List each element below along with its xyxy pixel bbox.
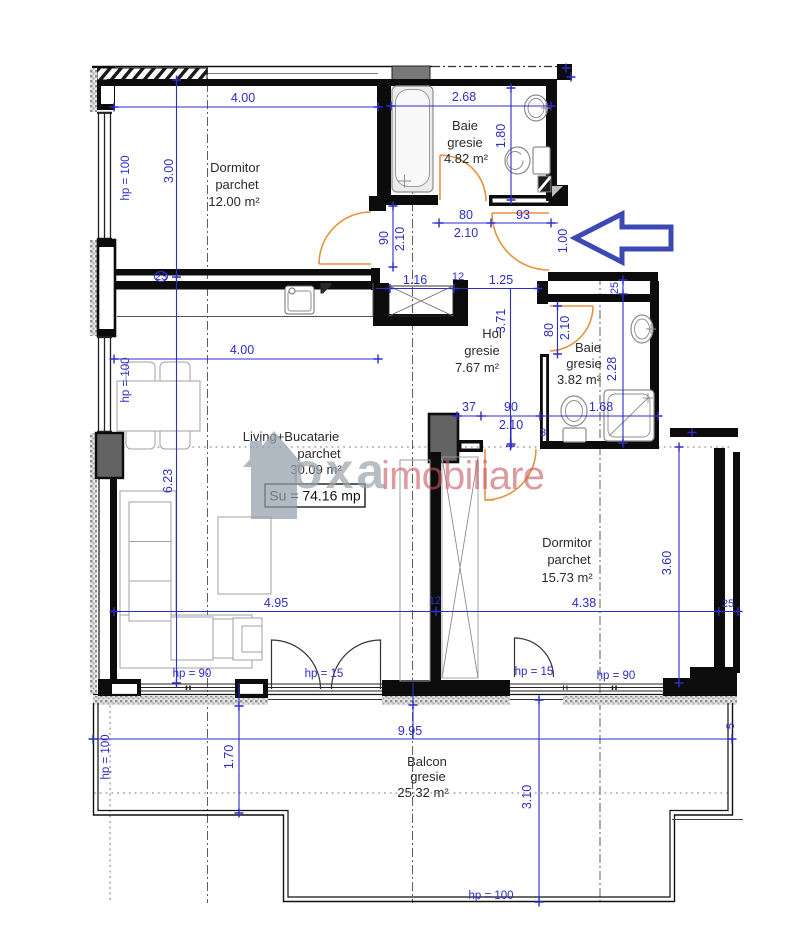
svg-text:hp = 100: hp = 100 [120,357,132,402]
svg-text:25: 25 [609,282,621,294]
svg-text:3.00: 3.00 [162,159,176,183]
svg-text:1.25: 1.25 [489,273,513,287]
svg-text:1.68: 1.68 [589,400,613,414]
svg-text:2.28: 2.28 [605,357,619,381]
svg-text:Hol: Hol [482,326,502,341]
svg-text:90: 90 [377,231,391,245]
svg-text:12: 12 [452,271,464,283]
svg-text:imobiliare: imobiliare [381,454,544,498]
svg-text:hp = 100: hp = 100 [100,734,112,779]
svg-text:4.95: 4.95 [264,596,288,610]
svg-text:1.16: 1.16 [403,273,427,287]
svg-text:hp = 90: hp = 90 [173,668,212,680]
svg-text:25.32 m²: 25.32 m² [397,785,449,800]
svg-text:37: 37 [462,400,476,414]
svg-text:1.00: 1.00 [556,229,570,253]
svg-text:4.82 m²: 4.82 m² [444,151,489,166]
svg-text:3: 3 [540,427,546,439]
svg-text:hp = 15: hp = 15 [515,666,554,678]
svg-text:gresie: gresie [447,135,482,150]
svg-text:gresie: gresie [464,343,499,358]
svg-text:12: 12 [429,595,441,607]
svg-text:1.70: 1.70 [222,745,236,769]
svg-text:hp = 90: hp = 90 [597,670,636,682]
svg-text:3.10: 3.10 [520,785,534,809]
svg-text:gresie: gresie [566,356,601,371]
svg-text:12.00 m²: 12.00 m² [208,194,260,209]
svg-text:90: 90 [504,400,518,414]
svg-text:Dormitor: Dormitor [210,160,261,175]
svg-text:5: 5 [725,723,737,729]
svg-text:hp = 100: hp = 100 [468,890,513,902]
svg-text:2.10: 2.10 [393,227,407,251]
svg-text:2.10: 2.10 [454,226,478,240]
svg-text:parchet: parchet [547,552,591,567]
svg-text:93: 93 [516,208,530,222]
svg-text:1.80: 1.80 [494,124,508,148]
svg-text:80: 80 [542,323,556,337]
svg-text:23: 23 [155,271,167,283]
svg-text:4.38: 4.38 [572,596,596,610]
svg-text:2.68: 2.68 [452,90,476,104]
svg-text:Baie: Baie [575,340,601,355]
svg-text:oxa: oxa [292,443,387,499]
svg-text:Baie: Baie [452,118,478,133]
svg-text:7.67 m²: 7.67 m² [455,360,500,375]
svg-text:9.95: 9.95 [398,724,422,738]
svg-text:6.23: 6.23 [161,469,175,493]
svg-text:3.60: 3.60 [660,551,674,575]
svg-text:gresie: gresie [410,769,445,784]
svg-text:4.00: 4.00 [231,91,255,105]
svg-text:Dormitor: Dormitor [542,535,593,550]
svg-text:parchet: parchet [215,177,259,192]
svg-text:15.73 m²: 15.73 m² [541,570,593,585]
svg-text:25: 25 [722,598,734,610]
svg-text:hp = 100: hp = 100 [120,155,132,200]
svg-text:hp = 15: hp = 15 [305,668,344,680]
svg-text:Balcon: Balcon [407,754,447,769]
svg-text:4.00: 4.00 [230,343,254,357]
svg-text:80: 80 [459,208,473,222]
svg-text:2.10: 2.10 [558,316,572,340]
svg-text:3.82 m²: 3.82 m² [557,372,602,387]
